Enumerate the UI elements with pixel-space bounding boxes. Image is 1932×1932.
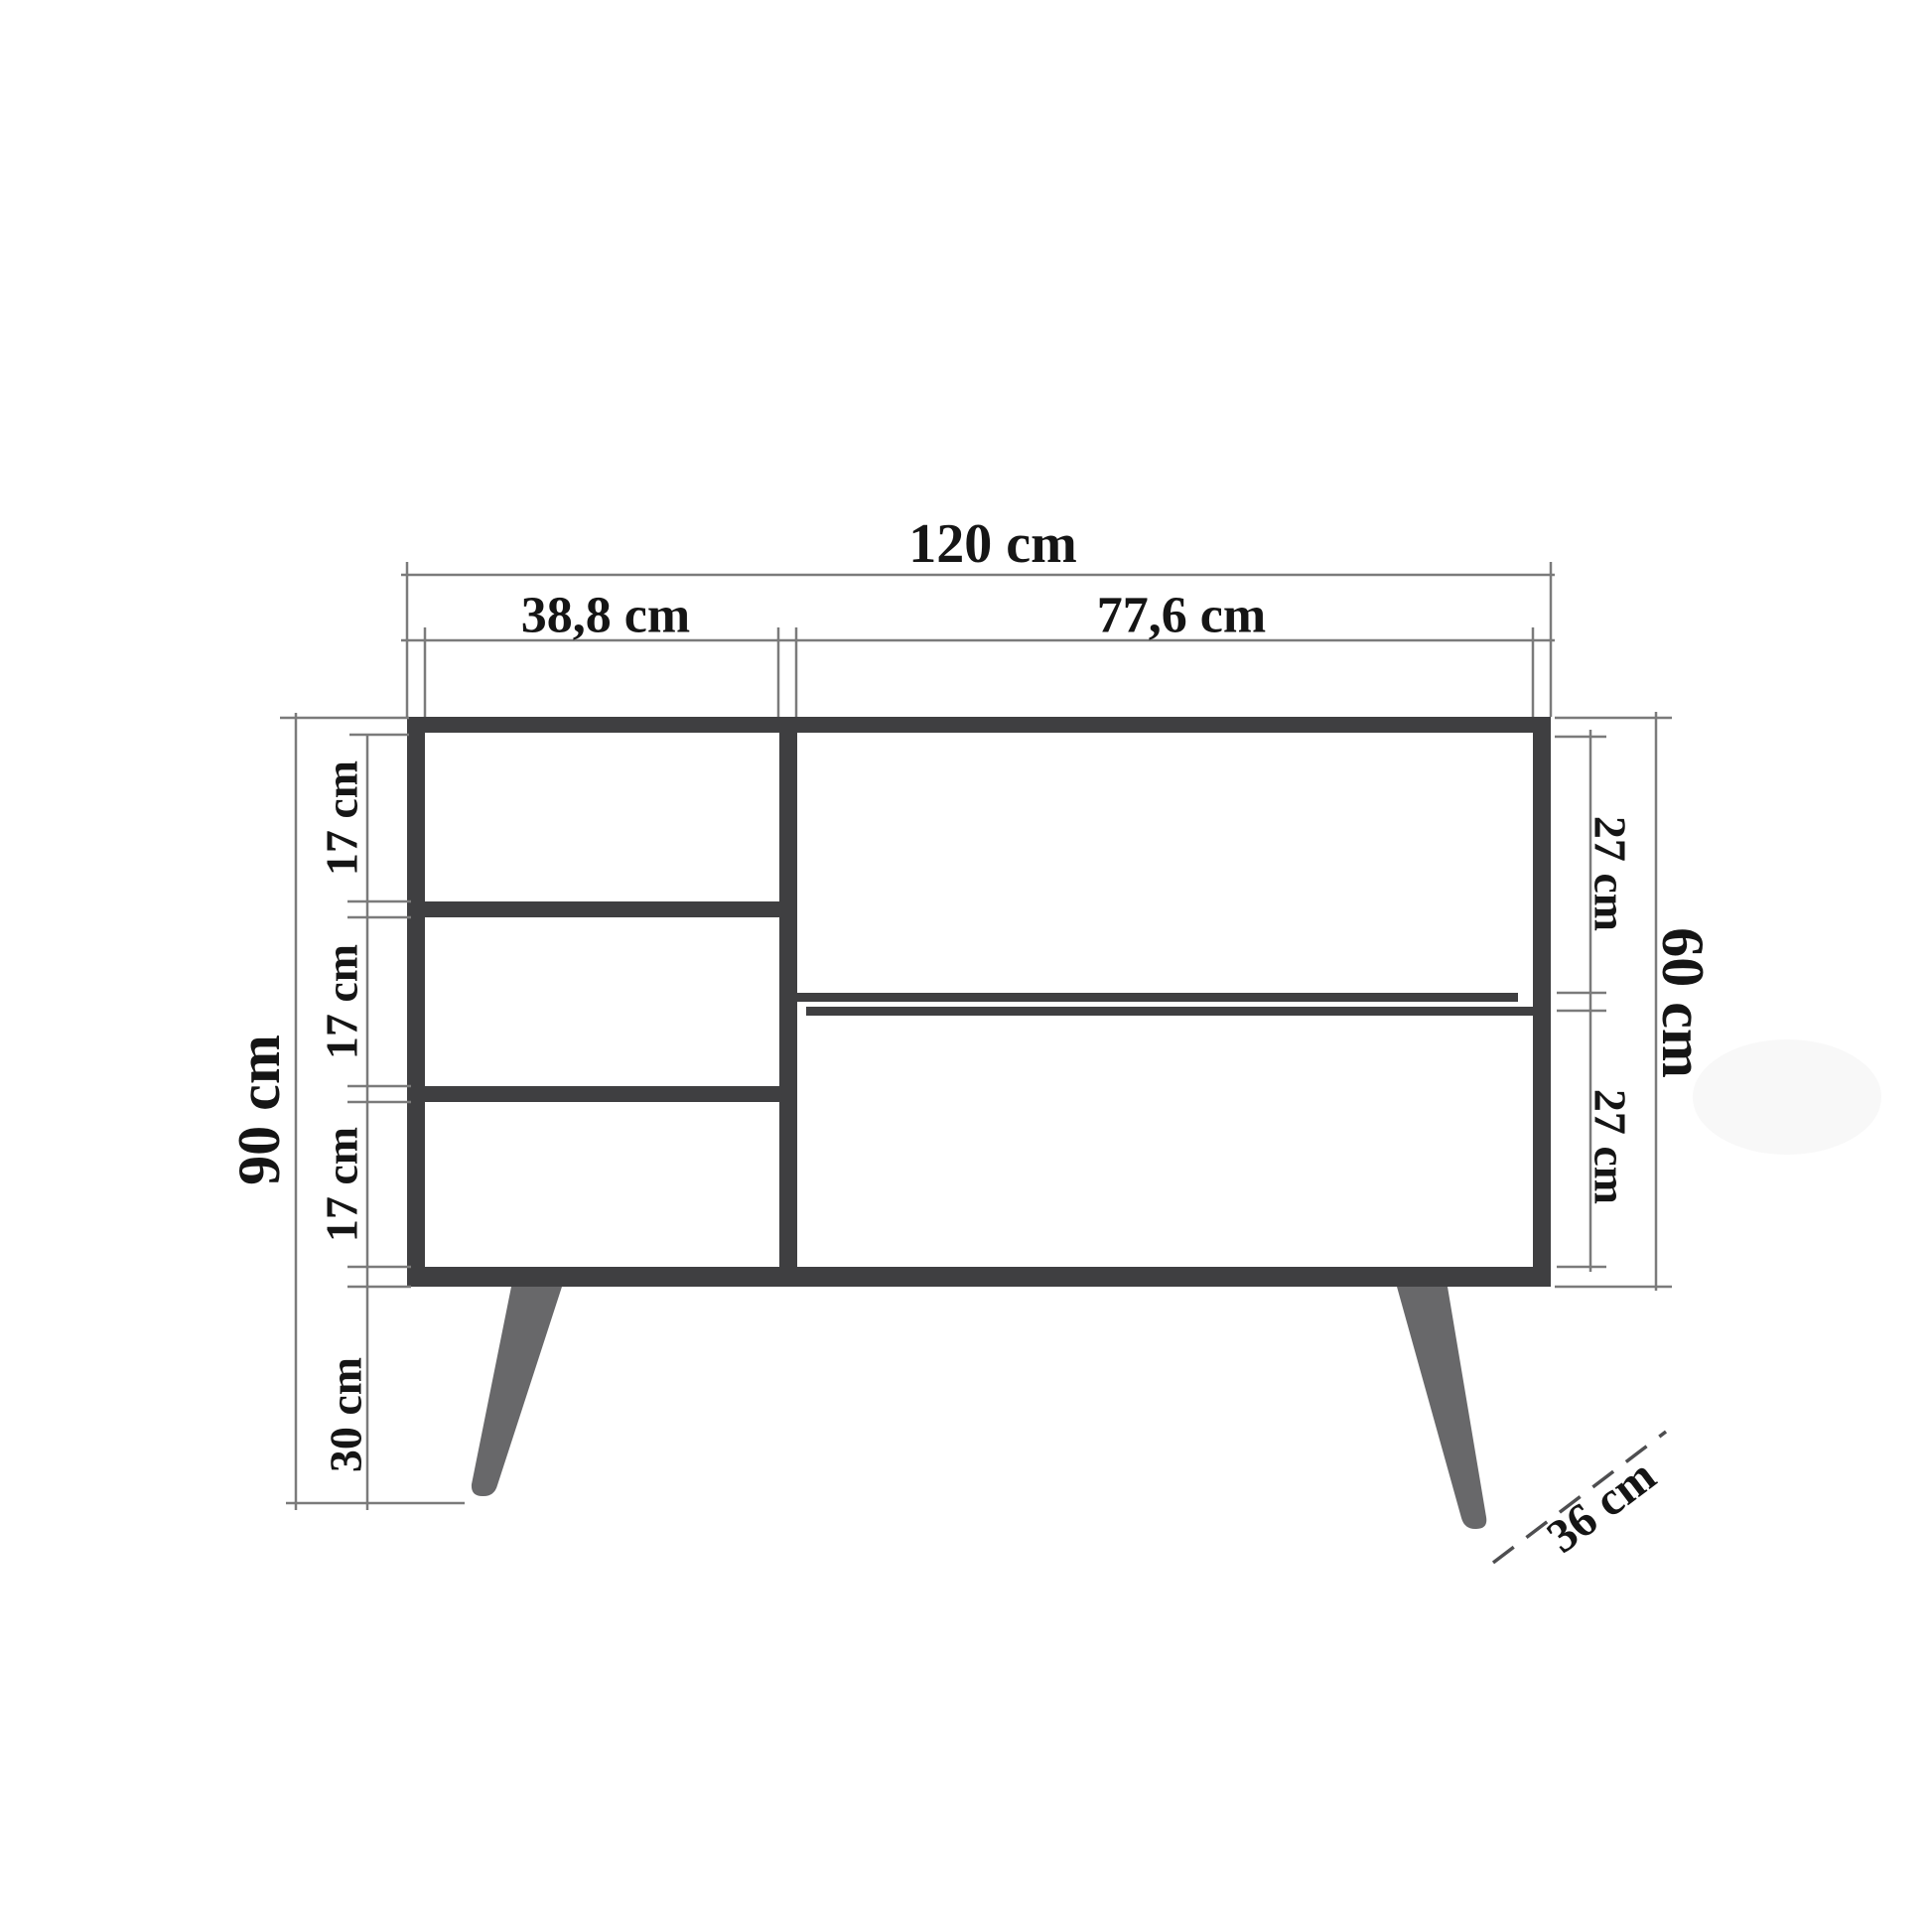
top-panel bbox=[407, 717, 1551, 733]
paper-smudge bbox=[1693, 1039, 1881, 1155]
center-divider bbox=[779, 733, 797, 1267]
drawer-divider-2 bbox=[425, 1086, 779, 1102]
right-shelf-lower-edge bbox=[806, 1007, 1533, 1016]
drawer-divider-1 bbox=[425, 901, 779, 917]
right-side-panel bbox=[1533, 717, 1551, 1287]
furniture-dimension-diagram: 120 cm 38,8 cm 77,6 cm 90 cm 17 cm 17 cm… bbox=[0, 0, 1932, 1932]
label-drawer-3-height: 17 cm bbox=[317, 1127, 367, 1242]
label-right-section-width: 77,6 cm bbox=[1097, 588, 1266, 644]
label-drawer-1-height: 17 cm bbox=[317, 760, 367, 876]
label-right-upper-height: 27 cm bbox=[1586, 816, 1636, 931]
left-side-panel bbox=[407, 717, 425, 1287]
label-total-height: 90 cm bbox=[226, 1035, 292, 1185]
background bbox=[0, 0, 1932, 1932]
label-leg-height: 30 cm bbox=[321, 1357, 371, 1472]
right-shelf-upper-edge bbox=[797, 993, 1518, 1002]
label-left-section-width: 38,8 cm bbox=[521, 588, 690, 644]
label-body-height: 60 cm bbox=[1650, 927, 1716, 1078]
label-total-width: 120 cm bbox=[908, 513, 1077, 575]
bottom-panel bbox=[407, 1267, 1551, 1287]
diagram-canvas: 120 cm 38,8 cm 77,6 cm 90 cm 17 cm 17 cm… bbox=[0, 0, 1932, 1932]
label-drawer-2-height: 17 cm bbox=[317, 944, 367, 1059]
label-right-lower-height: 27 cm bbox=[1586, 1089, 1636, 1204]
